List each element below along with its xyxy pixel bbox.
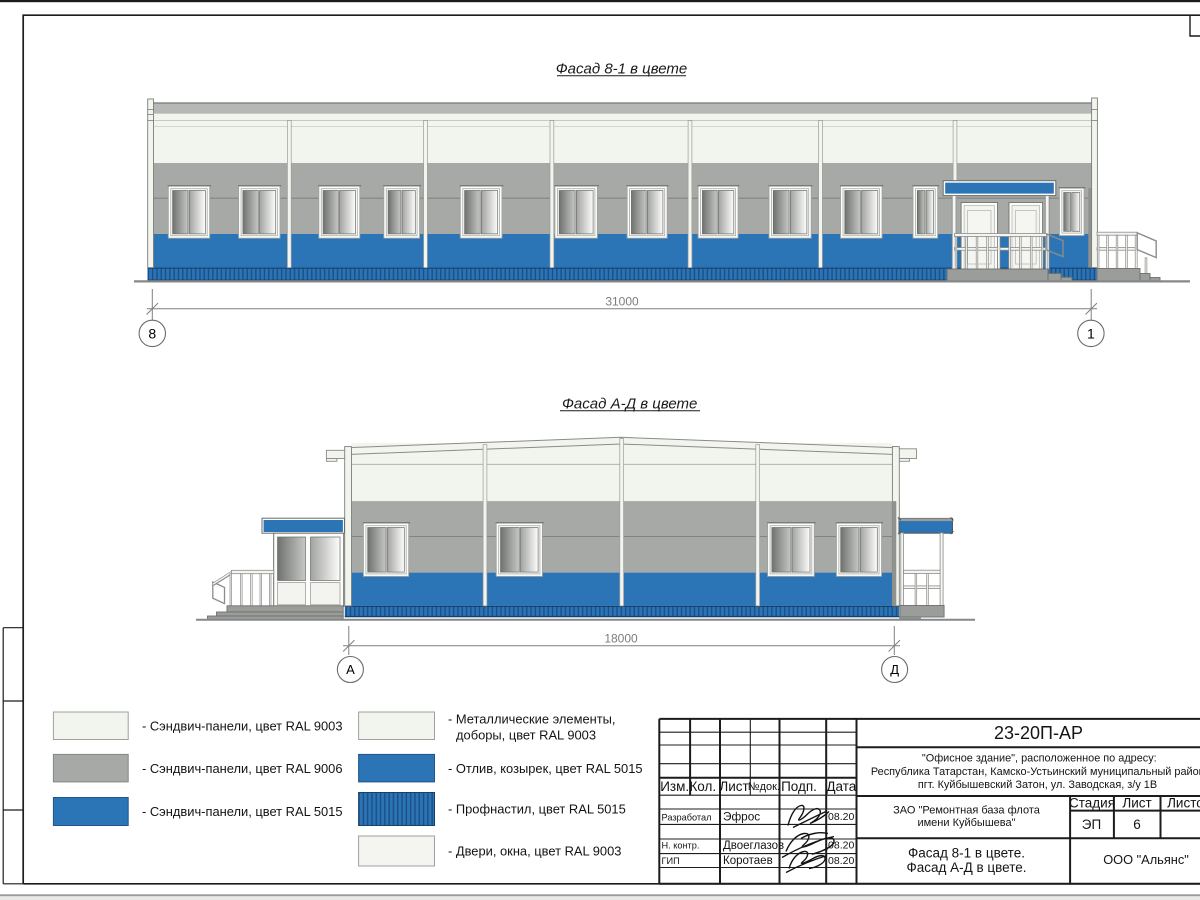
svg-text:08.20: 08.20 (828, 855, 854, 867)
svg-text:"Офисное здание", расположенно: "Офисное здание", расположенное по адрес… (922, 752, 1157, 764)
svg-text:8: 8 (148, 325, 156, 341)
svg-text:Подп.: Подп. (781, 779, 817, 794)
svg-text:ЭП: ЭП (1082, 817, 1101, 832)
svg-text:№док.: №док. (748, 781, 780, 793)
svg-text:Фасад А-Д в цвете.: Фасад А-Д в цвете. (906, 860, 1026, 875)
svg-text:Эфрос: Эфрос (723, 810, 760, 824)
svg-text:- Отлив, козырек, цвет RAL 501: - Отлив, козырек, цвет RAL 5015 (448, 761, 643, 776)
svg-text:А: А (346, 662, 355, 677)
svg-text:ЗАО "Ремонтная база флота: ЗАО "Ремонтная база флота (893, 805, 1041, 817)
svg-text:Кол.: Кол. (689, 779, 716, 794)
svg-text:Д: Д (890, 662, 899, 677)
svg-text:доборы, цвет RAL 9003: доборы, цвет RAL 9003 (456, 728, 596, 743)
svg-text:Стадия: Стадия (1069, 796, 1115, 811)
svg-text:- Сэндвич-панели, цвет RAL 501: - Сэндвич-панели, цвет RAL 5015 (142, 804, 343, 819)
svg-text:Лист: Лист (1122, 796, 1151, 811)
svg-text:ООО "Альянс": ООО "Альянс" (1103, 852, 1189, 867)
svg-text:- Металлические элементы,: - Металлические элементы, (448, 712, 615, 727)
svg-text:Коротаев: Коротаев (723, 855, 773, 867)
svg-text:23-20П-АР: 23-20П-АР (994, 723, 1083, 743)
svg-text:- Сэндвич-панели, цвет RAL 900: - Сэндвич-панели, цвет RAL 9003 (142, 719, 343, 734)
svg-text:Дата: Дата (826, 779, 856, 794)
svg-text:ГИП: ГИП (662, 856, 680, 866)
svg-text:Н. контр.: Н. контр. (662, 841, 700, 851)
svg-text:1: 1 (1087, 325, 1095, 341)
svg-text:- Сэндвич-панели, цвет RAL 900: - Сэндвич-панели, цвет RAL 9006 (142, 761, 343, 776)
svg-text:Республика Татарстан, Камско-У: Республика Татарстан, Камско-Устьинский … (871, 766, 1200, 778)
svg-text:Фасад 8-1 в цвете: Фасад 8-1 в цвете (556, 60, 688, 77)
svg-text:пгт. Куйбышевский Затон, ул. З: пгт. Куйбышевский Затон, ул. Заводская, … (918, 779, 1157, 791)
svg-text:6: 6 (1133, 817, 1141, 832)
svg-text:Двоеглазов: Двоеглазов (723, 840, 784, 852)
svg-text:31000: 31000 (605, 295, 639, 309)
svg-text:- Двери, окна, цвет RAL 9003: - Двери, окна, цвет RAL 9003 (448, 844, 621, 859)
svg-text:имени Куйбышева": имени Куйбышева" (917, 817, 1015, 829)
svg-text:18000: 18000 (604, 632, 638, 646)
svg-text:Лист: Лист (719, 779, 748, 794)
svg-text:Фасад А-Д в цвете: Фасад А-Д в цвете (562, 395, 697, 412)
svg-text:- Профнастил, цвет RAL 5015: - Профнастил, цвет RAL 5015 (448, 802, 626, 817)
svg-text:Листов: Листов (1167, 796, 1200, 811)
svg-text:08.20: 08.20 (828, 811, 854, 823)
svg-text:Изм.: Изм. (660, 779, 689, 794)
svg-text:Фасад 8-1 в цвете.: Фасад 8-1 в цвете. (908, 846, 1025, 861)
svg-text:Разработал: Разработал (662, 813, 712, 823)
